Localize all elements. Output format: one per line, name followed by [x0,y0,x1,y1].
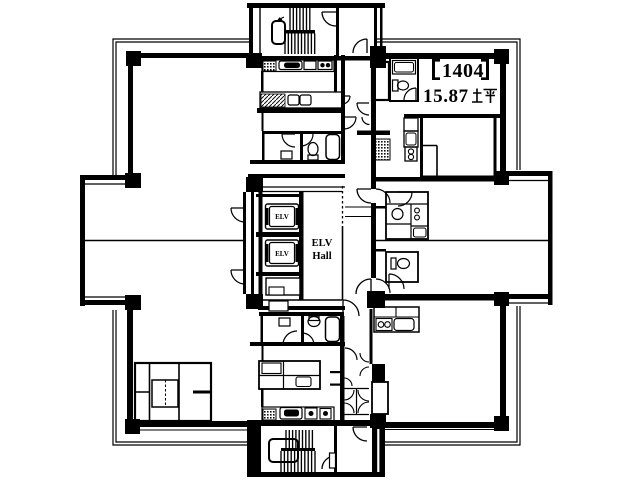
svg-text:15.87: 15.87 [423,86,469,107]
svg-text:Hall: Hall [312,251,331,262]
svg-text:1404: 1404 [442,60,484,82]
svg-text:ELV: ELV [275,250,289,258]
svg-text:ELV: ELV [312,238,333,249]
svg-text:ELV: ELV [275,213,289,221]
